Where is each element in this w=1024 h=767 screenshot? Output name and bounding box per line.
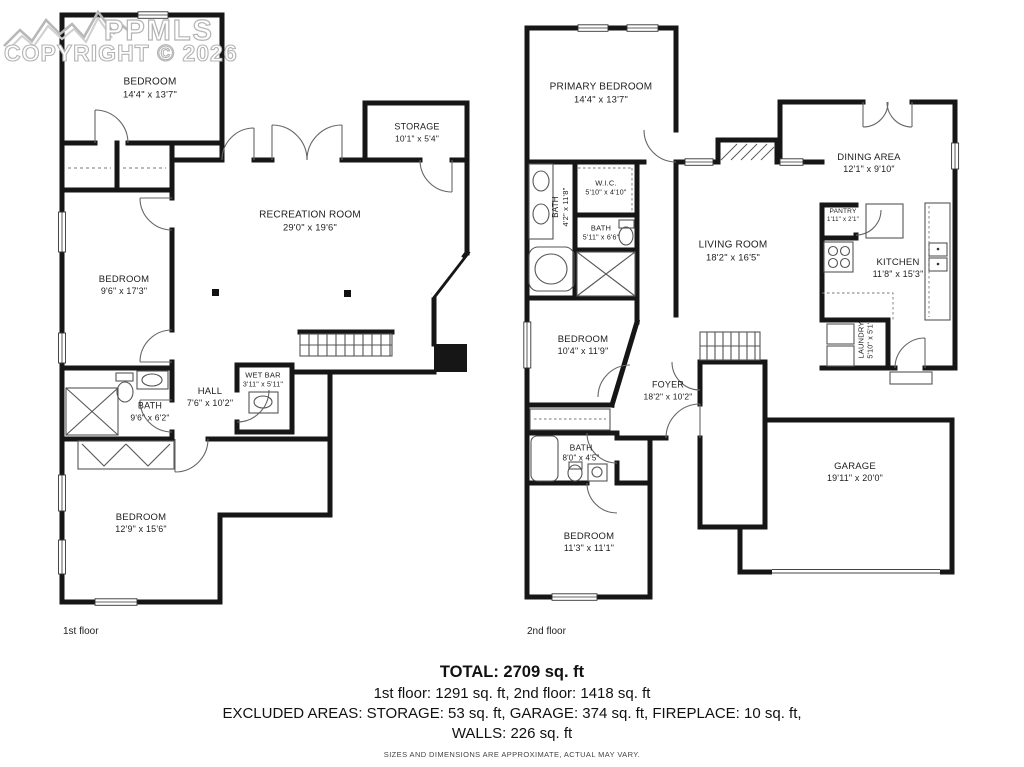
room-label-bedroom-1: BEDROOM14'4" x 13'7" [123,75,177,100]
closet-strip [530,409,610,430]
stove [824,242,853,272]
room-label-laundry: LAUNDRY5'10" x 5'1" [857,321,876,358]
room-label-primary-bedroom: PRIMARY BEDROOM14'4" x 13'7" [550,80,653,105]
sink-basin [592,467,602,477]
room-label-bath-1: BATH9'6" x 6'2" [130,401,169,424]
sink-dot [937,248,940,251]
room-label-bedroom-5: BEDROOM11'3" x 11'1" [564,531,615,555]
room-label-hall: HALL7'6" x 10'2" [187,386,233,410]
sink-dot [937,263,940,266]
toilet-bowl [117,382,133,402]
room-label-foyer: FOYER18'2" x 10'2" [644,380,693,403]
room-label-wic: W.I.C.5'10" x 4'10" [585,179,626,198]
toilet-tank [116,373,133,381]
room-label-storage: STORAGE10'1" x 5'4" [394,122,439,145]
summary-total: TOTAL: 2709 sq. ft [0,663,1024,682]
fireplace-hatch [721,144,774,160]
room-label-wet-bar: WET BAR3'11" x 5'11" [243,371,283,390]
room-label-bedroom-3: BEDROOM12'9" x 15'6" [115,512,167,536]
summary-block: TOTAL: 2709 sq. ft 1st floor: 1291 sq. f… [0,663,1024,759]
floor2-tag: 2nd floor [527,626,566,637]
room-label-pantry: PANTRY1'11" x 2'1" [827,208,859,224]
summary-excluded-2: WALLS: 226 sq. ft [0,725,1024,742]
floor2-dashed [534,168,929,419]
summary-excluded-1: EXCLUDED AREAS: STORAGE: 53 sq. ft, GARA… [0,705,1024,722]
copyright-text: COPYRIGHT © 2026 [4,40,238,66]
toilet-bowl [619,227,633,245]
structural-post [212,289,219,296]
wetbar-sink [249,392,278,413]
garage-door-opening [772,568,940,577]
ppmls-logo: PPMLS COPYRIGHT © 2026 [4,12,238,66]
structural-post [344,290,351,297]
toilet-bowl [568,465,582,481]
fireplace-chase-block [434,344,467,372]
summary-floors: 1st floor: 1291 sq. ft, 2nd floor: 1418 … [0,685,1024,702]
sink-basin [533,171,549,191]
room-label-dining-area: DINING AREA12'1" x 9'10" [837,152,900,176]
room-label-bath-3: BATH8'0" x 4'5" [562,442,599,463]
floor-plan-drawing: PPMLS COPYRIGHT © 2026 [0,0,1024,767]
room-label-garage: GARAGE19'11" x 20'0" [827,461,883,485]
kitchen-island [866,204,903,238]
room-label-bedroom-2: BEDROOM9'6" x 17'3" [99,274,150,298]
porch-step [890,372,932,384]
room-label-bath-primary: BATH4'2" x 11'8" [551,188,571,227]
floor-plan-page: PPMLS COPYRIGHT © 2026 BEDROOM14'4" x 13… [0,0,1024,767]
room-label-kitchen: KITCHEN11'8" x 15'3" [873,257,924,281]
sink-basin [142,374,162,386]
tub [531,436,558,481]
floor1-tag: 1st floor [63,626,99,637]
double-sink-counter [529,164,553,239]
room-label-living-room: LIVING ROOM18'2" x 16'5" [699,238,768,263]
room-label-bath-2: BATH5'11" x 6'6" [583,224,620,243]
floor2-walls [527,28,955,597]
washer [827,324,854,344]
dryer [827,346,854,366]
sink-basin [533,204,549,224]
room-label-bedroom-4: BEDROOM10'4" x 11'9" [558,334,609,358]
summary-disclaimer: SIZES AND DIMENSIONS ARE APPROXIMATE, AC… [0,750,1024,759]
room-label-recreation-room: RECREATION ROOM29'0" x 19'6" [259,208,361,233]
